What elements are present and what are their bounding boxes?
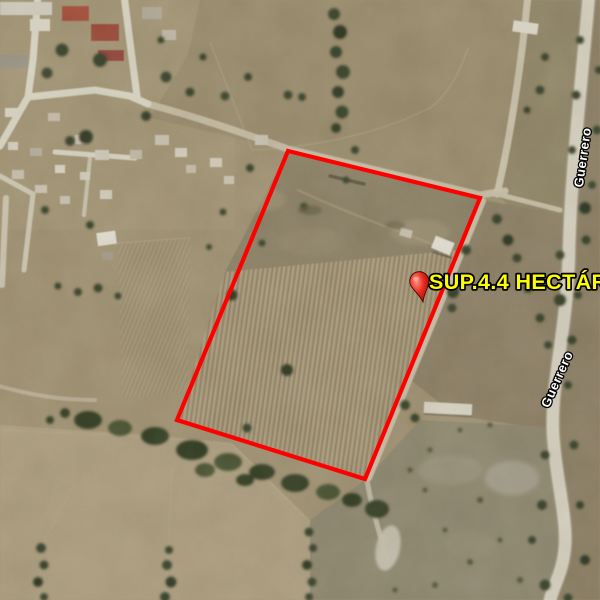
satellite-map[interactable]: SUP.4.4 HECTÁREAS Guerrero Guerrero [0,0,600,600]
map-canvas[interactable]: SUP.4.4 HECTÁREAS Guerrero Guerrero [0,0,600,600]
texture-overlay [0,0,600,600]
terrain-layer [0,0,600,600]
parcel-area-label: SUP.4.4 HECTÁREAS [429,269,600,294]
